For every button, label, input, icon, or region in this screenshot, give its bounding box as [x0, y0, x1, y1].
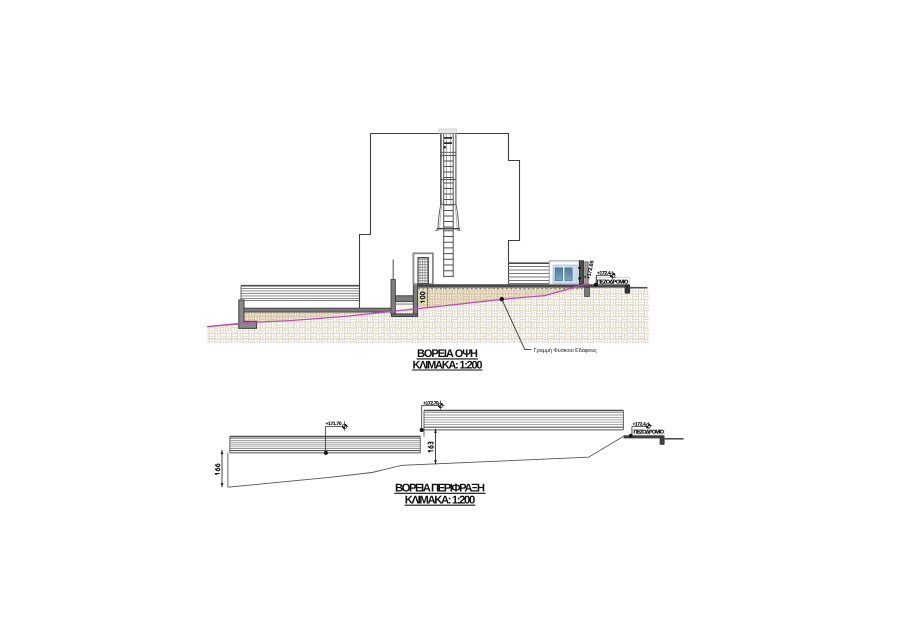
- svg-text:ΠΕΖΟΔΡΟΜΙΟ: ΠΕΖΟΔΡΟΜΙΟ: [597, 279, 629, 285]
- svg-text:Γραμμή Φυσικού Εδάφους: Γραμμή Φυσικού Εδάφους: [534, 347, 598, 354]
- svg-text:ΠΕΖΟΔΡΟΜΙΟ: ΠΕΖΟΔΡΟΜΙΟ: [634, 430, 665, 436]
- svg-text:+172.4: +172.4: [597, 271, 611, 277]
